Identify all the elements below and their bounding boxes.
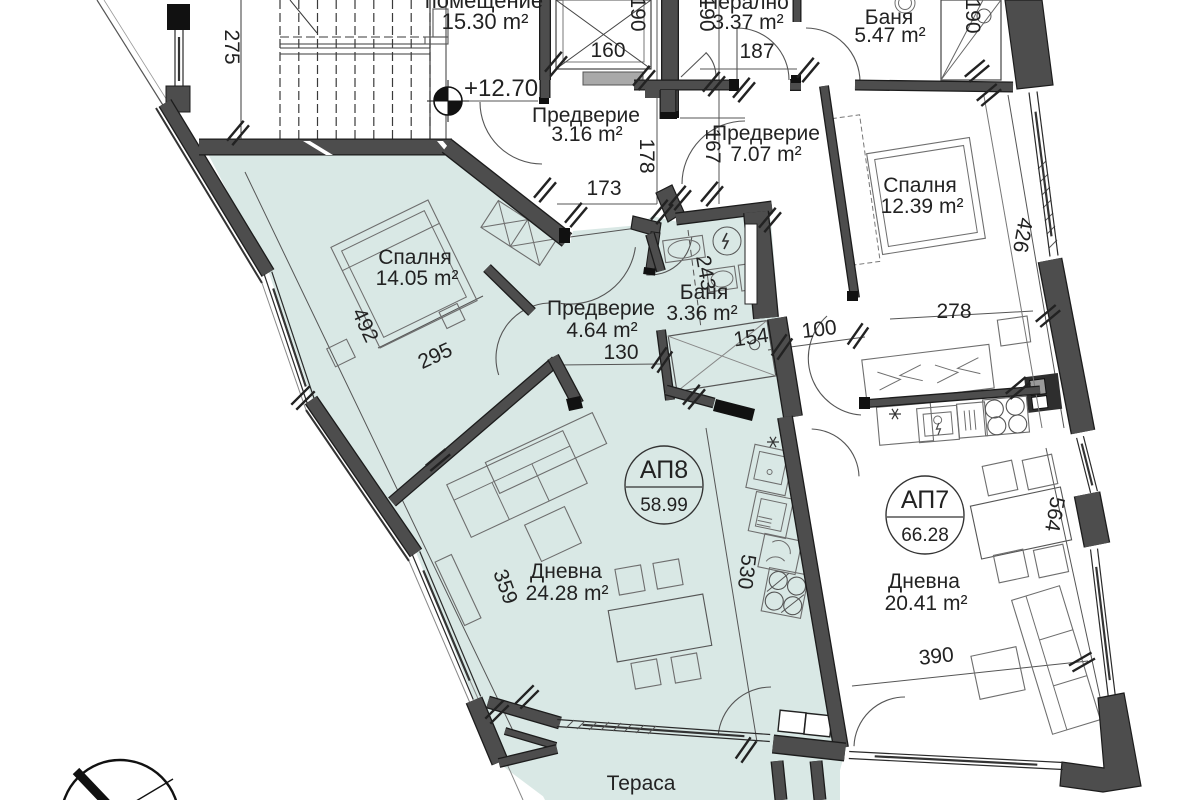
svg-text:190: 190 <box>695 0 718 32</box>
svg-text:Спалня: Спалня <box>883 174 956 197</box>
svg-text:178: 178 <box>635 138 658 173</box>
svg-text:160: 160 <box>590 39 625 62</box>
svg-text:190: 190 <box>961 0 984 34</box>
svg-text:Предверие: Предверие <box>547 297 655 320</box>
svg-text:130: 130 <box>603 341 638 364</box>
svg-text:100: 100 <box>800 316 838 343</box>
svg-text:3.37 m²: 3.37 m² <box>712 11 783 34</box>
svg-text:66.28: 66.28 <box>901 525 949 546</box>
svg-text:4.64 m²: 4.64 m² <box>566 319 637 342</box>
svg-text:24.28 m²: 24.28 m² <box>526 582 609 605</box>
svg-text:Дневна: Дневна <box>888 570 960 593</box>
svg-text:Предверие: Предверие <box>712 122 820 145</box>
svg-text:АП8: АП8 <box>640 456 688 484</box>
svg-text:3.16 m²: 3.16 m² <box>551 123 622 146</box>
svg-text:58.99: 58.99 <box>640 495 688 516</box>
svg-text:167: 167 <box>701 128 724 163</box>
svg-text:3.36 m²: 3.36 m² <box>666 302 737 325</box>
svg-text:190: 190 <box>626 0 649 32</box>
svg-text:12.39 m²: 12.39 m² <box>881 195 964 218</box>
svg-text:Тераса: Тераса <box>607 772 676 795</box>
svg-text:14.05 m²: 14.05 m² <box>376 267 459 290</box>
svg-text:Дневна: Дневна <box>530 560 602 583</box>
svg-text:187: 187 <box>739 40 774 63</box>
svg-text:5.47 m²: 5.47 m² <box>854 24 925 47</box>
svg-text:15.30 m²: 15.30 m² <box>442 9 529 34</box>
svg-text:20.41 m²: 20.41 m² <box>885 592 968 615</box>
svg-text:278: 278 <box>936 300 971 323</box>
svg-text:АП7: АП7 <box>901 486 949 514</box>
svg-text:275: 275 <box>220 29 243 64</box>
svg-text:154: 154 <box>732 324 770 352</box>
svg-text:390: 390 <box>918 643 955 670</box>
svg-text:+12.70: +12.70 <box>464 75 538 102</box>
svg-text:530: 530 <box>733 553 760 591</box>
svg-text:173: 173 <box>586 177 621 200</box>
svg-text:7.07 m²: 7.07 m² <box>730 143 801 166</box>
svg-text:Спалня: Спалня <box>378 246 451 269</box>
